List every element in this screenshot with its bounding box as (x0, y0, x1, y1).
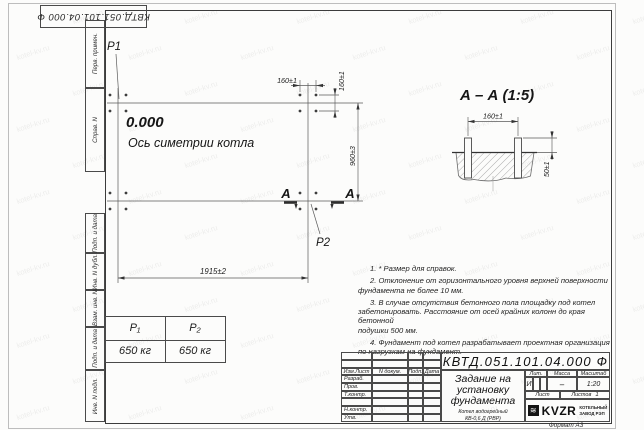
format-label: Формат А3 (520, 422, 612, 429)
dim-1915: 1915±2 (200, 267, 227, 276)
arrowhead (333, 111, 336, 118)
tb-col-data: Дата (423, 368, 441, 375)
anchor-bolt-left (465, 138, 472, 178)
tb-row-prov: Пров. (341, 383, 372, 391)
section-dim-50: 50±1 (544, 161, 551, 177)
tb-col-podp: Подп. (408, 368, 423, 375)
load-table-value-p2: 650 кг (165, 340, 226, 363)
arrowhead (302, 276, 309, 279)
technical-notes: 1. * Размер для справок. 2. Отклонение о… (358, 264, 613, 359)
document-subtitle-1: Котел водогрейный (451, 409, 515, 416)
arrowhead (316, 84, 323, 87)
document-title-cell: Задание на установку фундамента Котел во… (441, 370, 525, 422)
title-block: Изм.Лист N докум. Подп. Дата Разраб. Про… (341, 352, 610, 422)
arrowhead (118, 276, 125, 279)
revision-cell (423, 360, 441, 368)
section-letter-left: А (280, 186, 290, 201)
p1-label: P1 (107, 41, 121, 53)
tb-col-n-dokum: N докум. (372, 368, 408, 375)
tb-row-razrab: Разраб. (341, 375, 372, 383)
section-view-title: А – А (1:5) (459, 87, 534, 104)
plan-axes (107, 83, 363, 283)
tb-sheets-value: 1 (595, 392, 598, 398)
note-1: 1. * Размер для справок. (358, 264, 613, 273)
section-letter-right: А (344, 186, 354, 201)
section-dim-160: 160±1 (483, 112, 503, 121)
load-table: P₁ P₂ 650 кг 650 кг (105, 316, 225, 362)
document-subtitle-2: КВ-0,6 Д (РВР) (451, 416, 515, 422)
company-logo-cell: ≋ KVZR КОТЕЛЬНЫЙ ЗАВОД РЭП (525, 399, 610, 422)
tb-sheet-label: Лист (525, 391, 560, 399)
revision-cell (408, 360, 423, 368)
drawing-sheet: kotel-kv.rukotel-kv.rukotel-kv.rukotel-k… (0, 0, 644, 430)
arrowhead (550, 132, 553, 139)
kvzr-logo-text: KVZR (542, 404, 577, 418)
note-3: 3. В случае отсутствия бетонного пола пл… (358, 298, 613, 335)
tb-scale-value: 1:20 (577, 377, 610, 391)
tb-mass-header: Масса (547, 370, 577, 377)
load-table-value-p1: 650 кг (105, 340, 166, 363)
revision-cell (372, 352, 408, 360)
load-table-header-p1: P₁ (105, 316, 166, 341)
kvzr-logo-mark: ≋ (528, 405, 539, 416)
section-arrow (330, 204, 333, 209)
arrowhead (356, 195, 359, 202)
company-name-line2: ЗАВОД РЭП (579, 411, 607, 417)
tb-sheets-cell: Листов 1 (560, 391, 610, 399)
arrowhead (468, 120, 475, 123)
document-designation: КВТД.051.101.04.000 Ф (441, 352, 610, 370)
revision-cell (341, 360, 372, 368)
p2-label: P2 (316, 237, 331, 249)
note-2: 2. Отклонение от горизонтального уровня … (358, 276, 613, 295)
arrowhead (550, 153, 553, 160)
section-arrow (294, 204, 297, 209)
p1-leader (116, 54, 119, 99)
tb-col-izm-list: Изм.Лист (341, 368, 372, 375)
revision-cell (423, 352, 441, 360)
tb-lit-header: Лит. (525, 370, 547, 377)
tb-row-blank (341, 398, 372, 406)
load-table-header-p2: P₂ (165, 316, 226, 341)
tb-row-utv: Утв. (341, 414, 372, 422)
dim-160-right: 160±1 (337, 71, 346, 91)
arrowhead (512, 120, 519, 123)
revision-cell (341, 352, 372, 360)
document-title: Задание на установку фундамента (442, 374, 524, 407)
dim-160-top: 160±1 (277, 76, 297, 85)
tb-lit-value: И (525, 377, 533, 391)
anchor-bolt-right (515, 138, 522, 178)
arrowhead (356, 103, 359, 110)
revision-cell (372, 360, 408, 368)
tb-row-tkontr: Т.контр. (341, 391, 372, 399)
tb-mass-value: – (547, 377, 577, 391)
revision-cell (408, 352, 423, 360)
level-mark: 0.000 (126, 114, 164, 131)
tb-scale-header: Масштаб (577, 370, 610, 377)
boiler-symmetry-axis-label: Ось симетрии котла (128, 136, 254, 150)
dim-960: 960±3 (348, 146, 357, 166)
tb-row-nkontr: Н.контр. (341, 406, 372, 414)
